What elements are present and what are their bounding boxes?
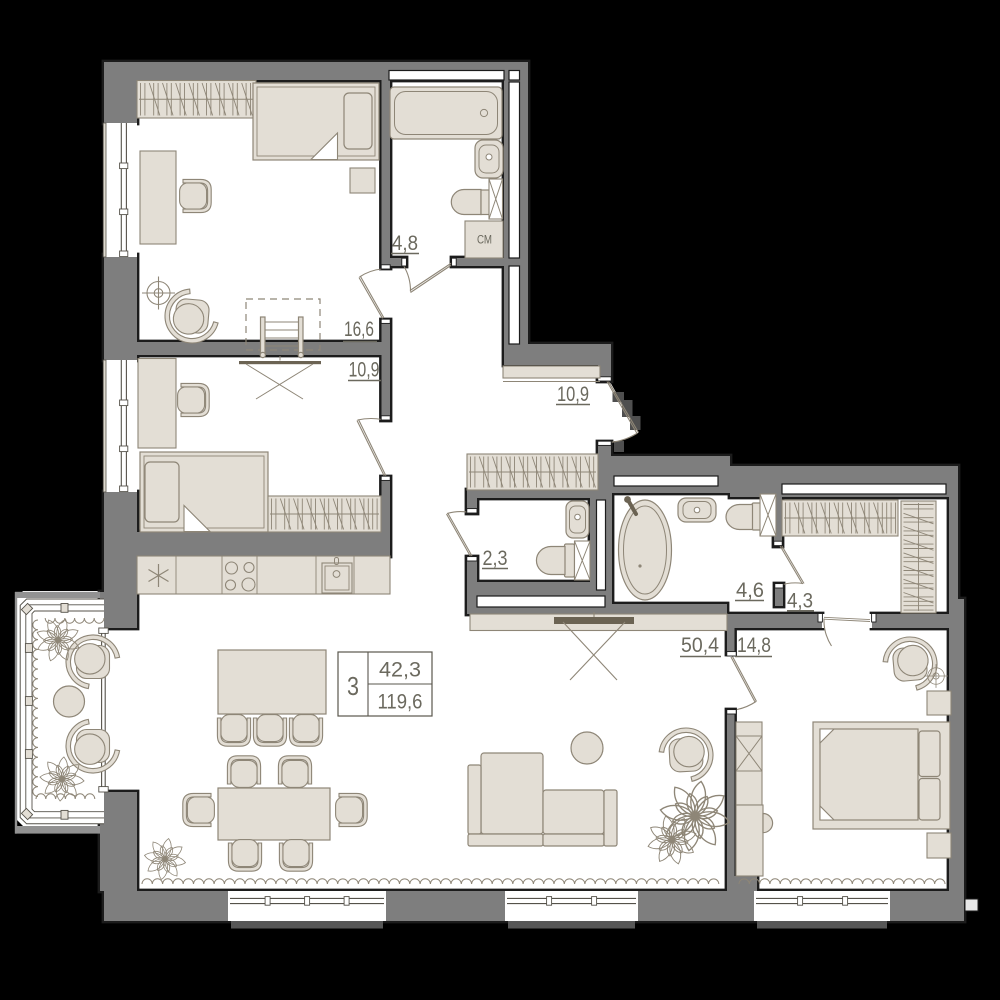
svg-text:10,9: 10,9	[349, 359, 380, 382]
svg-text:4,3: 4,3	[787, 590, 813, 613]
svg-text:3: 3	[347, 671, 359, 701]
svg-text:14,8: 14,8	[737, 634, 771, 657]
svg-text:50,4: 50,4	[681, 634, 719, 657]
svg-text:СМ: СМ	[477, 233, 492, 247]
svg-text:4,8: 4,8	[392, 232, 418, 255]
svg-text:119,6: 119,6	[378, 690, 423, 714]
svg-text:2,3: 2,3	[483, 547, 508, 570]
svg-text:4,6: 4,6	[736, 579, 764, 602]
svg-text:16,6: 16,6	[344, 318, 374, 341]
svg-text:42,3: 42,3	[379, 658, 421, 682]
svg-text:10,9: 10,9	[557, 383, 589, 406]
